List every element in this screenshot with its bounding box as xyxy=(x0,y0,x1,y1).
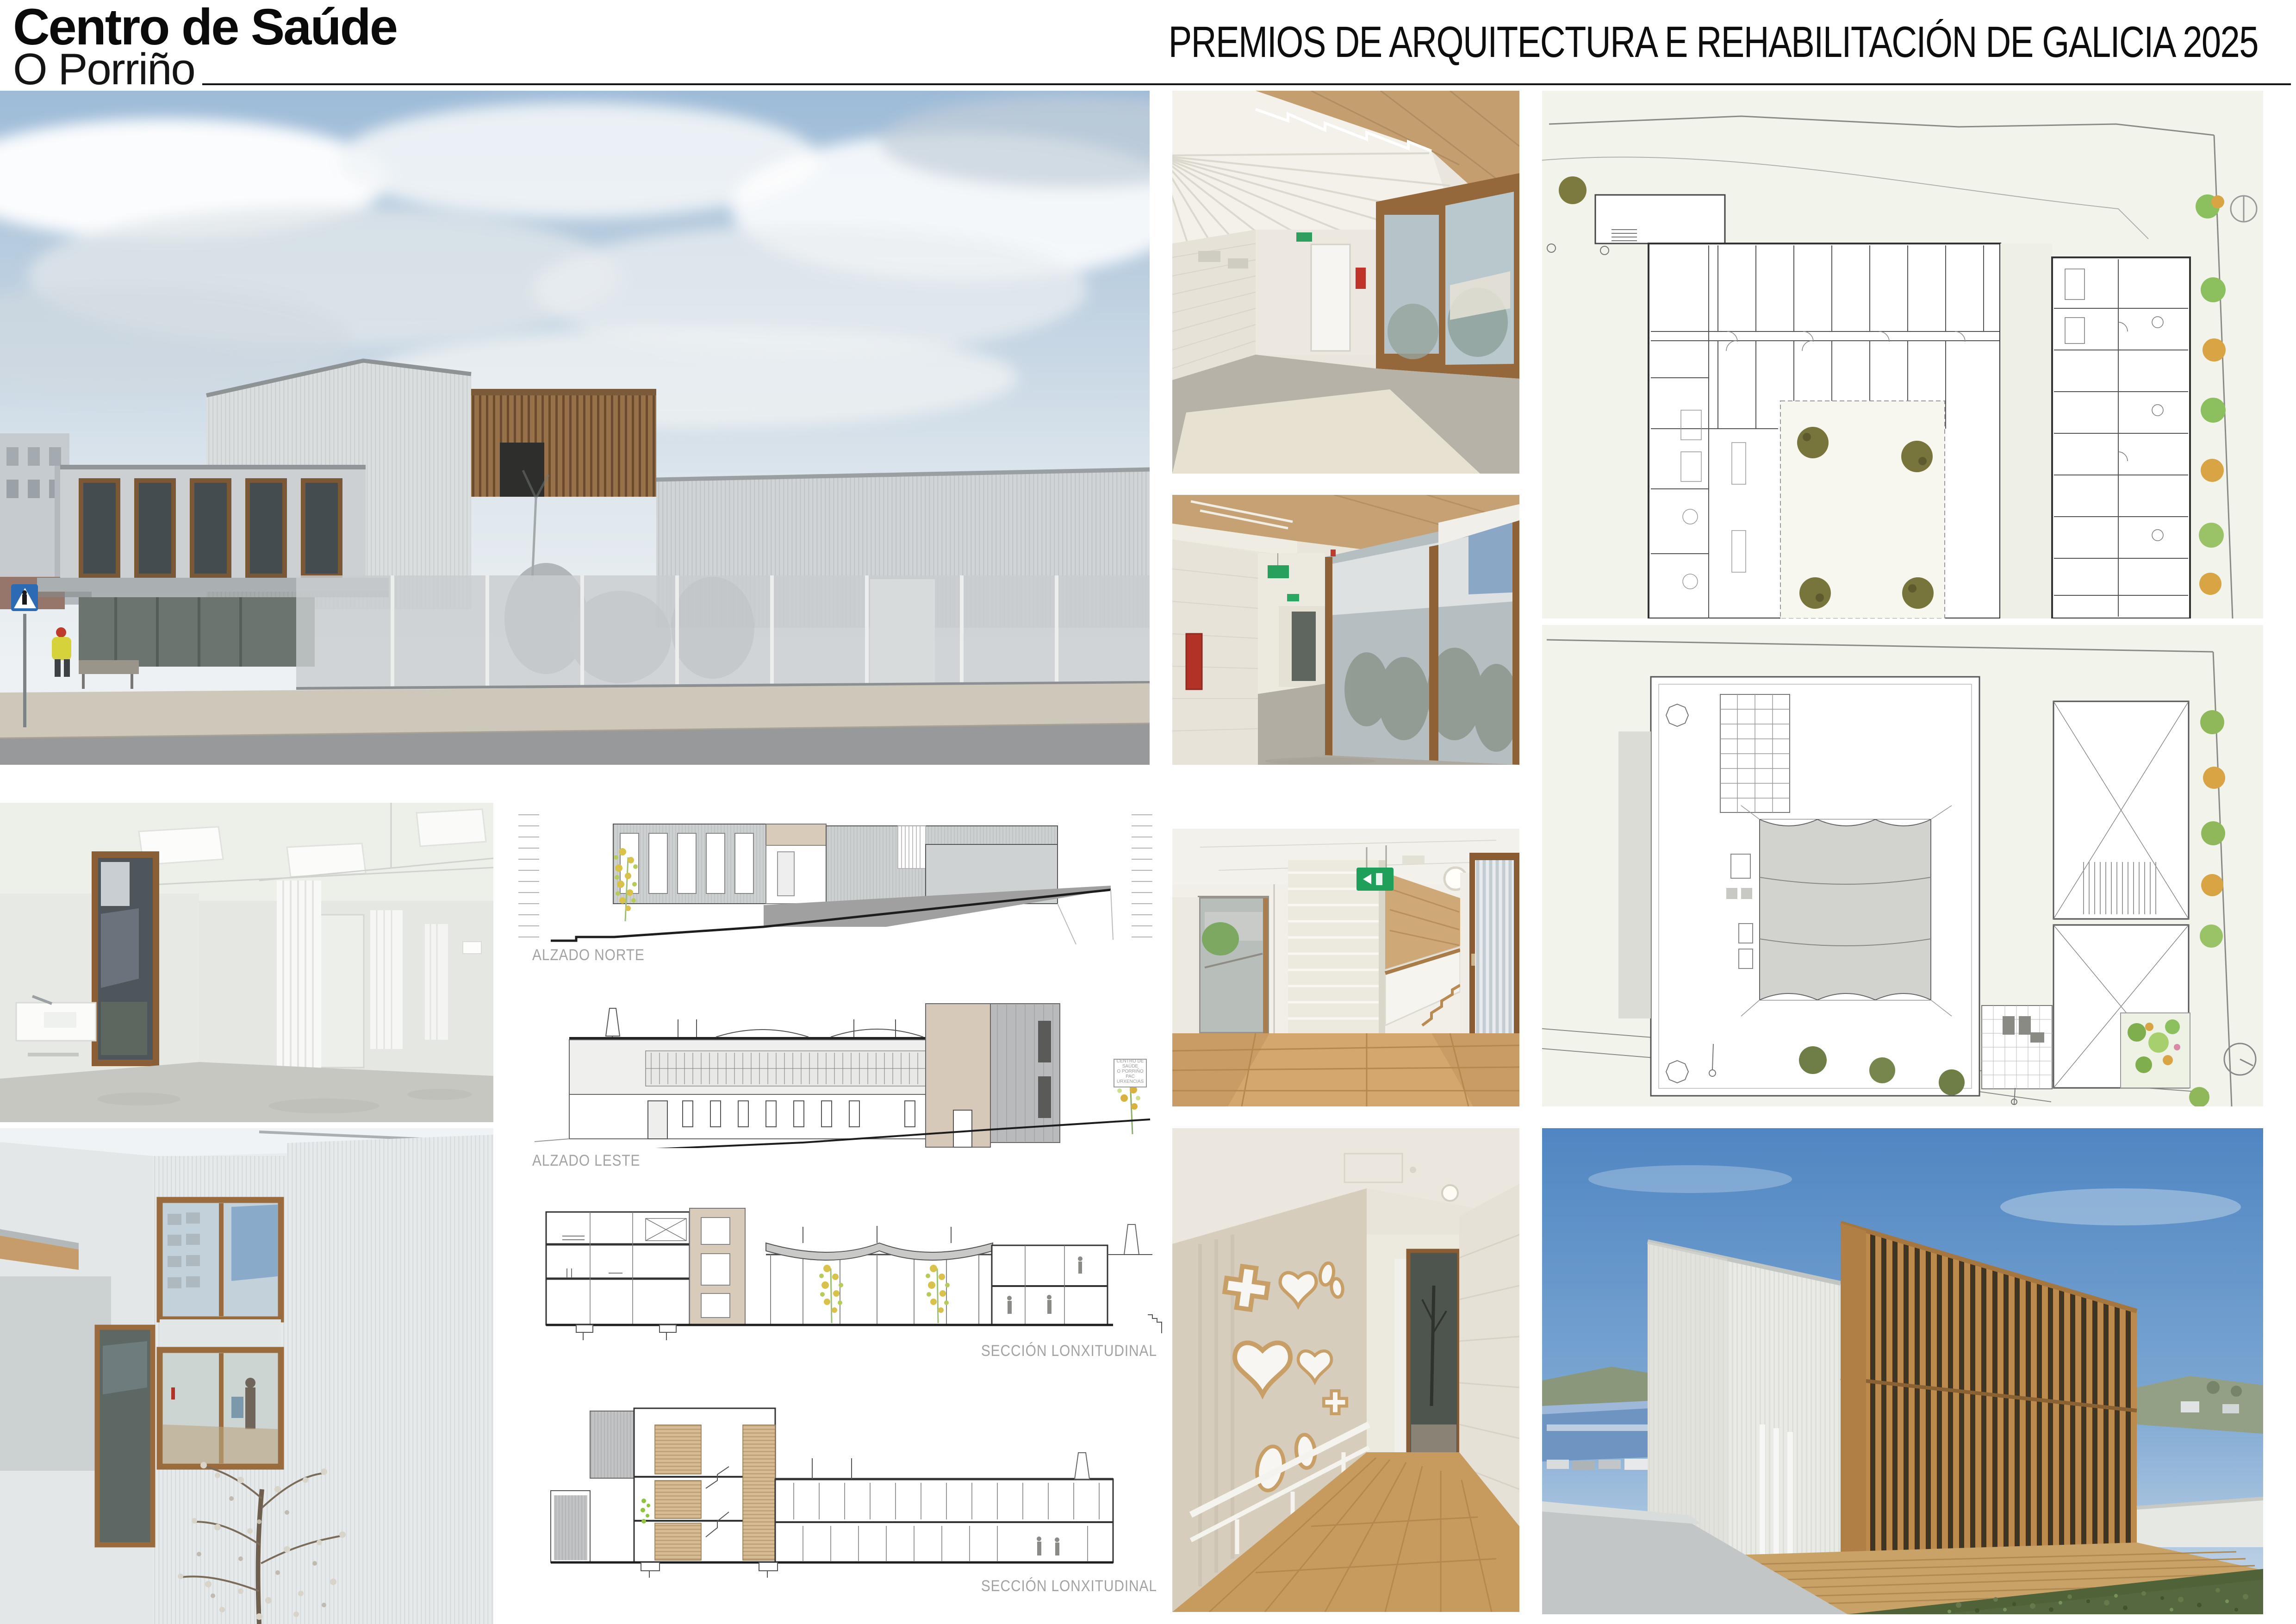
waiting-room-illustration xyxy=(1172,91,1519,474)
label-seccion-2: SECCIÓN LONXITUDINAL xyxy=(981,1577,1157,1595)
garden-patch xyxy=(2121,1013,2190,1088)
courtyard xyxy=(1780,401,1945,618)
alarm xyxy=(1331,550,1336,556)
outdoor-strip xyxy=(2000,244,2052,618)
glass-tower-reflection xyxy=(231,1205,278,1281)
corridor-glazed-illustration xyxy=(1172,495,1519,765)
ramp-corridor-illustration xyxy=(1172,1128,1519,1612)
section-right-block xyxy=(992,1245,1108,1325)
corridor-vista xyxy=(1258,553,1325,765)
downlight xyxy=(1442,1185,1458,1201)
label-wrap-seccion-1: SECCIÓN LONXITUDINAL xyxy=(507,1342,1157,1360)
photo-main-exterior xyxy=(0,91,1150,765)
tensile-canopy xyxy=(1741,806,1952,1016)
exit-sign-small xyxy=(1287,594,1299,601)
sign-line: PAC xyxy=(1112,1074,1149,1079)
seccion-2-drawing xyxy=(507,1384,1164,1579)
drawing-seccion-1 xyxy=(507,1199,1164,1343)
clouds xyxy=(0,95,1150,429)
drawing-alzado-leste xyxy=(507,995,1164,1148)
stair-hall-illustration xyxy=(1172,829,1519,1106)
label-alzado-norte: ALZADO NORTE xyxy=(532,946,645,964)
drawing-seccion-2 xyxy=(507,1384,1164,1579)
ground-floor-plan-drawing xyxy=(1542,91,2263,618)
photo-corridor-glazed xyxy=(1172,495,1519,765)
award-title: PREMIOS DE ARQUITECTURA E REHABILITACIÓN… xyxy=(1169,20,2258,64)
right-wall xyxy=(287,1135,493,1624)
leste-signage-text: CENTRO DE SAÚDE O PORRIÑO PAC URXENCIAS xyxy=(1112,1059,1149,1084)
exit-sign xyxy=(1268,565,1289,578)
treatment-room-illustration xyxy=(0,803,493,1122)
seccion-1-drawing xyxy=(507,1199,1164,1343)
photo-treatment-room xyxy=(0,803,493,1122)
white-door xyxy=(1311,244,1350,351)
tree xyxy=(1559,176,1587,204)
fire-extinguisher-cabinet xyxy=(1356,268,1366,289)
courtyard-glazing xyxy=(1376,173,1519,379)
light-panel xyxy=(417,809,486,846)
exit-sign xyxy=(1296,232,1312,242)
section-left-block xyxy=(546,1212,690,1325)
person-silhouette xyxy=(245,1387,255,1429)
cubicle-door xyxy=(319,915,364,1068)
roof-terrace-illustration xyxy=(1542,1128,2263,1614)
main-roof xyxy=(1618,677,1979,1096)
lower-window xyxy=(160,1350,281,1467)
roof-terrace-grid xyxy=(1982,1006,2052,1089)
drawing-alzado-norte xyxy=(507,806,1164,949)
left-wall xyxy=(1172,230,1256,380)
skylight-grid xyxy=(1720,694,1790,812)
timber-box-volume xyxy=(471,389,656,497)
wood-floor xyxy=(1172,1033,1519,1106)
photo-roof-terrace xyxy=(1542,1128,2263,1614)
left-block xyxy=(0,1142,153,1624)
left-wall xyxy=(1172,539,1258,765)
plan-ground-floor xyxy=(1542,91,2263,618)
end-wall-doorway xyxy=(1367,1235,1459,1466)
wood-framed-windows xyxy=(81,481,340,576)
roof-plan-drawing xyxy=(1542,625,2263,1106)
tall-window xyxy=(95,855,156,1063)
photo-waiting-room xyxy=(1172,91,1519,474)
presentation-board: Centro de Saúde O Porriño PREMIOS DE ARQ… xyxy=(0,0,2296,1624)
street-glass-door xyxy=(1172,884,1274,1046)
alzado-norte-drawing xyxy=(507,806,1164,949)
alzado-leste-drawing xyxy=(507,995,1164,1148)
shadow-face xyxy=(1648,1242,1727,1559)
upper-window xyxy=(160,1200,281,1319)
sign-line: SAÚDE xyxy=(1112,1064,1149,1069)
photo-ramp-corridor xyxy=(1172,1128,1519,1612)
plan-roof xyxy=(1542,625,2263,1106)
label-seccion-1: SECCIÓN LONXITUDINAL xyxy=(981,1342,1157,1360)
mesh-fence xyxy=(296,575,1150,688)
label-wrap-seccion-2: SECCIÓN LONXITUDINAL xyxy=(507,1577,1157,1595)
east-wing xyxy=(2052,257,2190,618)
patio-illustration xyxy=(0,1128,493,1624)
sign-line: CENTRO DE xyxy=(1112,1059,1149,1064)
label-alzado-leste: ALZADO LESTE xyxy=(532,1152,640,1170)
fire-hose-cabinet xyxy=(1186,634,1202,689)
photo-stair-hall xyxy=(1172,829,1519,1106)
header-rule xyxy=(202,83,2291,85)
page-subtitle: O Porriño xyxy=(13,47,195,92)
sign-line: O PORRIÑO xyxy=(1112,1069,1149,1074)
far-glass-door xyxy=(1292,612,1316,681)
sign-line: URXENCIAS xyxy=(1112,1079,1149,1084)
main-exterior-illustration xyxy=(0,91,1150,765)
photo-patio xyxy=(0,1128,493,1624)
